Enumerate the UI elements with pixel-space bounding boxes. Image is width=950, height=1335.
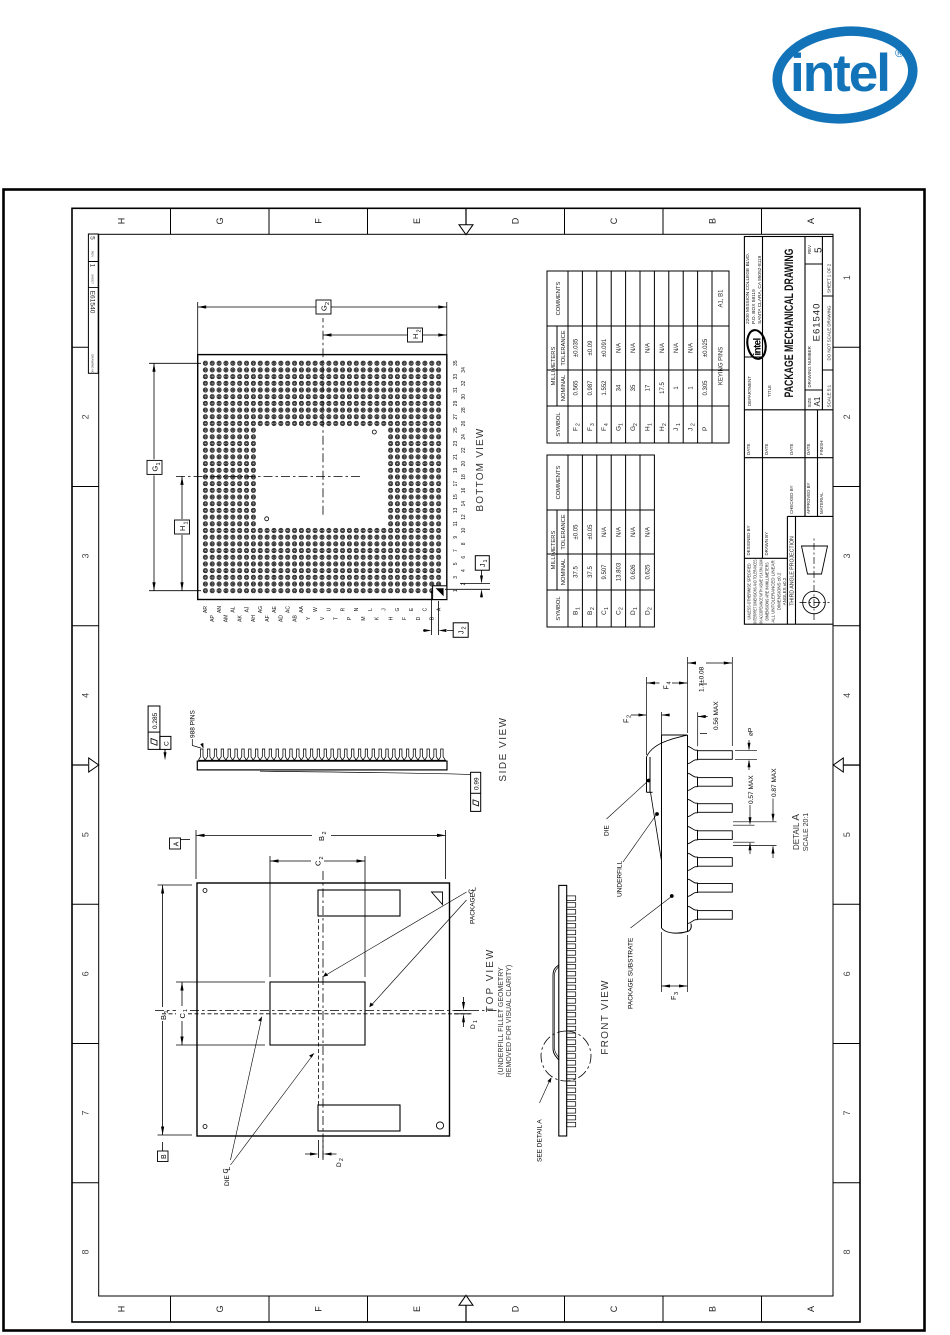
svg-text:MILLIMETERS: MILLIMETERS	[551, 531, 557, 570]
svg-text:5: 5	[89, 236, 96, 240]
svg-text:AC: AC	[286, 606, 292, 613]
svg-text:4: 4	[461, 569, 467, 572]
svg-text:D: D	[644, 610, 651, 615]
svg-text:COMMENTS: COMMENTS	[556, 281, 562, 315]
svg-text:H: H	[116, 1306, 126, 1313]
svg-text:2: 2	[627, 715, 633, 718]
svg-text:Y: Y	[306, 616, 312, 620]
svg-text:H: H	[659, 426, 666, 431]
svg-text:30: 30	[461, 394, 467, 400]
svg-text:G: G	[151, 466, 160, 472]
svg-text:A: A	[436, 607, 442, 611]
svg-text:E: E	[412, 1306, 422, 1312]
svg-text:PACKAGE MECHANICAL DRAWING: PACKAGE MECHANICAL DRAWING	[782, 249, 796, 398]
svg-text:2: 2	[590, 607, 596, 610]
svg-text:19: 19	[453, 467, 459, 473]
svg-text:A1, B1: A1, B1	[719, 289, 725, 308]
svg-text:U: U	[327, 607, 333, 611]
svg-text:0.57 MAX: 0.57 MAX	[748, 775, 755, 804]
svg-text:9: 9	[453, 536, 459, 539]
svg-text:C: C	[601, 610, 608, 615]
svg-text:D: D	[470, 1024, 477, 1029]
svg-text:T: T	[334, 617, 340, 620]
svg-text:4: 4	[81, 693, 91, 698]
svg-text:TITLE: TITLE	[767, 385, 772, 397]
svg-text:8: 8	[461, 542, 467, 545]
svg-text:DATE: DATE	[806, 444, 811, 455]
svg-text:COMMENTS: COMMENTS	[556, 465, 562, 499]
svg-text:DRAWN BY: DRAWN BY	[764, 532, 769, 556]
svg-text:P.O. BOX 58119: P.O. BOX 58119	[751, 289, 757, 324]
svg-text:B: B	[572, 611, 579, 615]
svg-text:SHEET 1 OF 2: SHEET 1 OF 2	[827, 263, 832, 293]
svg-text:TOLERANCE: TOLERANCE	[561, 514, 567, 549]
svg-text:7: 7	[81, 1110, 91, 1115]
svg-text:N/A: N/A	[660, 343, 666, 353]
svg-text:AL: AL	[231, 606, 237, 612]
svg-text:P: P	[702, 427, 709, 431]
svg-text:N/A: N/A	[674, 343, 680, 353]
svg-text:SCALE 20:1: SCALE 20:1	[803, 813, 810, 852]
svg-text:E: E	[409, 607, 415, 611]
svg-text:1: 1	[633, 607, 639, 610]
svg-text:33: 33	[453, 374, 459, 380]
svg-text:CHECKED BY: CHECKED BY	[789, 485, 794, 514]
svg-text:ALL UNTOLERANCED LINEAR: ALL UNTOLERANCED LINEAR	[771, 560, 776, 622]
svg-text:A: A	[806, 218, 816, 224]
svg-text:1: 1	[184, 521, 190, 524]
svg-text:PACKAGE: PACKAGE	[470, 892, 477, 924]
svg-text:24: 24	[461, 434, 467, 440]
svg-text:±0.091: ±0.091	[602, 338, 608, 357]
svg-text:0.987: 0.987	[588, 380, 594, 396]
svg-text:7: 7	[842, 1110, 852, 1115]
svg-text:F: F	[664, 685, 671, 689]
svg-text:DEPARTMENT: DEPARTMENT	[747, 376, 752, 406]
svg-text:F: F	[587, 427, 594, 431]
svg-text:DATE: DATE	[764, 444, 769, 455]
svg-text:K: K	[375, 616, 381, 620]
svg-text:2: 2	[462, 626, 468, 629]
svg-text:2: 2	[339, 1158, 345, 1161]
svg-text:W: W	[313, 607, 319, 612]
svg-text:0.305: 0.305	[703, 380, 709, 396]
svg-text:±0.035: ±0.035	[573, 338, 579, 357]
svg-text:21: 21	[453, 454, 459, 460]
svg-text:B: B	[587, 611, 594, 615]
svg-text:G: G	[320, 305, 329, 311]
svg-text:FRONT VIEW: FRONT VIEW	[600, 979, 611, 1055]
svg-text:AD: AD	[279, 615, 285, 622]
svg-text:E: E	[412, 218, 422, 224]
svg-text:G: G	[630, 426, 637, 431]
svg-text:B: B	[430, 616, 436, 620]
svg-text:37.5: 37.5	[588, 566, 594, 578]
svg-text:AH: AH	[251, 615, 257, 622]
svg-text:F: F	[313, 218, 323, 224]
svg-text:H: H	[178, 526, 187, 531]
svg-text:±0.05: ±0.05	[573, 524, 579, 540]
svg-text:17: 17	[453, 481, 459, 487]
svg-text:N/A: N/A	[602, 527, 608, 537]
svg-text:17.5: 17.5	[660, 382, 666, 394]
svg-text:H: H	[411, 334, 420, 339]
svg-text:1: 1	[473, 1020, 479, 1023]
svg-text:AJ: AJ	[244, 606, 250, 612]
svg-text:AR: AR	[203, 606, 209, 613]
svg-text:1: 1	[619, 423, 625, 426]
svg-text:G: G	[215, 217, 225, 224]
svg-text:AN: AN	[217, 606, 223, 613]
svg-text:BOTTOM VIEW: BOTTOM VIEW	[475, 427, 486, 511]
svg-text:31: 31	[453, 387, 459, 393]
svg-text:J: J	[382, 608, 388, 611]
svg-text:SANTA CLARA, CA 95052-8119: SANTA CLARA, CA 95052-8119	[757, 255, 763, 324]
svg-text:F: F	[601, 427, 608, 431]
svg-text:SEE DETAIL A: SEE DETAIL A	[537, 1119, 544, 1162]
svg-text:2: 2	[325, 302, 331, 305]
svg-text:2: 2	[647, 607, 653, 610]
svg-text:DO NOT SCALE DRAWING: DO NOT SCALE DRAWING	[827, 305, 832, 360]
svg-text:6: 6	[81, 971, 91, 976]
svg-text:N/A: N/A	[645, 343, 651, 353]
svg-text:THIRD ANGLE PROJECTION: THIRD ANGLE PROJECTION	[790, 536, 796, 606]
svg-text:DIE: DIE	[224, 1175, 231, 1187]
svg-text:MILLIMETERS: MILLIMETERS	[551, 347, 557, 386]
svg-text:SYMBOL: SYMBOL	[556, 596, 562, 621]
svg-text:±0.025: ±0.025	[703, 338, 709, 357]
svg-text:B: B	[707, 1306, 717, 1312]
svg-text:A: A	[806, 1306, 816, 1312]
svg-text:F: F	[402, 617, 408, 620]
svg-text:intel: intel	[753, 337, 764, 355]
svg-text:D: D	[630, 610, 637, 615]
svg-text:DRAWING NO: DRAWING NO	[91, 354, 95, 374]
svg-text:AF: AF	[265, 615, 271, 621]
svg-text:N/A: N/A	[689, 343, 695, 353]
svg-text:NOMINAL: NOMINAL	[561, 558, 567, 585]
svg-text:32: 32	[461, 380, 467, 386]
svg-text:INTERPRET DIMENSIONS AND TOLER: INTERPRET DIMENSIONS AND TOLERANCES	[753, 559, 758, 623]
svg-text:1: 1	[604, 607, 610, 610]
svg-text:1: 1	[689, 386, 695, 390]
svg-text:12: 12	[461, 514, 467, 520]
svg-text:0.285: 0.285	[152, 712, 159, 729]
svg-text:(UNDERFILL FILLET GEOMETRY: (UNDERFILL FILLET GEOMETRY	[498, 967, 505, 1075]
svg-text:N: N	[354, 607, 360, 611]
svg-text:2: 2	[417, 329, 423, 332]
svg-text:AB: AB	[292, 615, 298, 622]
svg-text:35: 35	[631, 384, 637, 391]
svg-text:C: C	[178, 1013, 187, 1019]
svg-text:2: 2	[633, 423, 639, 426]
svg-text:L: L	[469, 887, 478, 891]
svg-text:A1: A1	[813, 396, 822, 406]
svg-text:SIZE: SIZE	[807, 398, 812, 408]
svg-text:C: C	[164, 741, 171, 746]
svg-text:0.625: 0.625	[645, 564, 651, 580]
svg-text:±0.09: ±0.09	[588, 340, 594, 356]
svg-text:5: 5	[453, 562, 459, 565]
svg-text:G: G	[395, 607, 401, 611]
svg-text:MATERIAL: MATERIAL	[819, 492, 824, 514]
svg-text:V: V	[320, 616, 326, 620]
svg-text:N/A: N/A	[617, 527, 623, 537]
svg-text:2: 2	[319, 856, 325, 859]
svg-text:H: H	[644, 426, 651, 431]
svg-text:IN ACCORDANCE WITH ASME Y14.5M: IN ACCORDANCE WITH ASME Y14.5M-1994	[759, 559, 764, 623]
svg-text:23: 23	[453, 441, 459, 447]
svg-text:0.565: 0.565	[573, 380, 579, 396]
svg-text:®: ®	[895, 46, 904, 60]
svg-text:2: 2	[81, 414, 91, 419]
svg-text:5: 5	[81, 832, 91, 837]
svg-text:ANGLES ±0.2: ANGLES ±0.2	[782, 577, 787, 605]
svg-text:1: 1	[89, 264, 96, 268]
svg-text:17: 17	[645, 384, 651, 391]
svg-text:SHEET: SHEET	[91, 274, 95, 284]
svg-text:27: 27	[453, 414, 459, 420]
svg-text:DIE: DIE	[604, 825, 611, 837]
svg-text:N/A: N/A	[617, 343, 623, 353]
svg-text:AG: AG	[258, 606, 264, 613]
svg-text:F: F	[572, 427, 579, 431]
svg-text:0.99: 0.99	[474, 777, 481, 790]
svg-text:J: J	[688, 428, 695, 431]
svg-text:B: B	[159, 1015, 168, 1020]
svg-text:H: H	[388, 616, 394, 620]
svg-text:P: P	[347, 616, 353, 620]
svg-text:2200 MISSION COLLEGE BLVD.: 2200 MISSION COLLEGE BLVD.	[745, 253, 751, 324]
svg-text:29: 29	[453, 400, 459, 406]
svg-text:F: F	[624, 719, 631, 723]
svg-text:7: 7	[453, 549, 459, 552]
svg-text:37.5: 37.5	[573, 566, 579, 578]
svg-text:NOMINAL: NOMINAL	[561, 374, 567, 401]
svg-text:DETAIL A: DETAIL A	[791, 814, 802, 850]
svg-text:14: 14	[461, 501, 467, 507]
svg-text:C: C	[314, 860, 323, 866]
svg-text:3: 3	[842, 553, 852, 558]
svg-text:4: 4	[604, 423, 610, 426]
svg-text:F: F	[313, 1306, 323, 1312]
svg-text:22: 22	[461, 447, 467, 453]
svg-text:G: G	[215, 1305, 225, 1312]
svg-text:28: 28	[461, 407, 467, 413]
svg-text:AK: AK	[238, 615, 244, 622]
svg-text:UNLESS OTHERWISE SPECIFIED: UNLESS OTHERWISE SPECIFIED	[747, 564, 752, 620]
svg-text:PACKAGE SUBSTRATE: PACKAGE SUBSTRATE	[628, 937, 635, 1009]
svg-text:2: 2	[322, 831, 328, 834]
svg-text:1: 1	[674, 386, 680, 390]
svg-text:11: 11	[453, 521, 459, 526]
svg-text:D: D	[510, 217, 520, 224]
svg-text:FINISH: FINISH	[819, 441, 824, 455]
svg-text:N/A: N/A	[631, 527, 637, 537]
svg-text:TOLERANCE: TOLERANCE	[561, 330, 567, 365]
svg-text:DESIGNED BY: DESIGNED BY	[746, 525, 751, 555]
svg-text:8: 8	[81, 1249, 91, 1254]
svg-text:6: 6	[842, 971, 852, 976]
svg-text:J: J	[459, 631, 466, 635]
svg-text:E61540: E61540	[812, 303, 823, 342]
svg-text:G: G	[616, 426, 623, 431]
svg-text:0.56 MAX: 0.56 MAX	[713, 701, 720, 730]
svg-text:DRAWING NUMBER: DRAWING NUMBER	[807, 346, 812, 387]
svg-text:6: 6	[461, 556, 467, 559]
svg-text:AM: AM	[224, 615, 230, 623]
svg-text:D: D	[510, 1305, 520, 1312]
svg-text:2: 2	[575, 423, 581, 426]
svg-text:E61540: E61540	[88, 291, 95, 314]
svg-text:1: 1	[676, 423, 682, 426]
svg-text:N/A: N/A	[645, 527, 651, 537]
svg-text:REV: REV	[807, 245, 812, 254]
svg-text:DIMENSIONS ±0.2: DIMENSIONS ±0.2	[777, 572, 782, 610]
svg-text:TOP VIEW: TOP VIEW	[485, 948, 496, 1013]
svg-text:±0.05: ±0.05	[588, 524, 594, 540]
svg-text:1: 1	[483, 559, 489, 562]
svg-text:DATE: DATE	[746, 444, 751, 455]
svg-text:15: 15	[453, 494, 459, 500]
svg-text:9.507: 9.507	[602, 564, 608, 580]
svg-text:35: 35	[453, 360, 459, 366]
svg-text:UNDERFILL: UNDERFILL	[617, 860, 624, 897]
svg-text:26: 26	[461, 421, 467, 427]
svg-text:5: 5	[842, 832, 852, 837]
svg-text:0.87 MAX: 0.87 MAX	[771, 768, 778, 797]
svg-text:REMOVED FOR VISUAL CLARITY): REMOVED FOR VISUAL CLARITY)	[506, 965, 513, 1078]
svg-text:⌀P: ⌀P	[748, 728, 755, 736]
svg-text:B: B	[317, 836, 326, 841]
svg-text:1: 1	[647, 423, 653, 426]
svg-text:J: J	[480, 564, 487, 568]
svg-text:2: 2	[662, 423, 668, 426]
svg-text:D: D	[336, 1162, 343, 1167]
svg-text:3: 3	[453, 576, 459, 579]
svg-text:L: L	[223, 1167, 232, 1171]
svg-text:REV: REV	[91, 251, 95, 257]
svg-text:SIDE VIEW: SIDE VIEW	[498, 716, 509, 781]
svg-text:C: C	[616, 610, 623, 615]
svg-text:34: 34	[461, 367, 467, 373]
svg-text:4: 4	[842, 693, 852, 698]
svg-text:3: 3	[81, 553, 91, 558]
svg-text:APPROVED BY: APPROVED BY	[806, 482, 811, 514]
svg-text:18: 18	[461, 474, 467, 480]
svg-text:C: C	[609, 1305, 619, 1312]
svg-text:F: F	[671, 996, 678, 1000]
svg-text:34: 34	[617, 384, 623, 391]
svg-text:20: 20	[461, 461, 467, 467]
svg-text:1: 1	[183, 1009, 189, 1012]
svg-text:AE: AE	[272, 606, 278, 613]
svg-text:5: 5	[814, 247, 825, 253]
svg-text:4: 4	[667, 681, 673, 684]
svg-text:988 PINS: 988 PINS	[190, 710, 197, 738]
svg-text:1: 1	[164, 1010, 170, 1013]
svg-text:3: 3	[674, 992, 680, 995]
svg-text:1: 1	[575, 607, 581, 610]
svg-text:B: B	[707, 218, 717, 224]
svg-text:10: 10	[461, 528, 467, 534]
svg-text:intel: intel	[790, 44, 889, 103]
svg-text:0.626: 0.626	[631, 564, 637, 580]
svg-text:D: D	[416, 616, 422, 620]
svg-text:SYMBOL: SYMBOL	[556, 412, 562, 437]
svg-text:AP: AP	[210, 615, 216, 622]
svg-text:2: 2	[842, 414, 852, 419]
svg-text:DIMENSIONS ARE IN MILLIMETERS: DIMENSIONS ARE IN MILLIMETERS	[765, 562, 770, 620]
svg-text:KEYING PINS: KEYING PINS	[719, 347, 725, 385]
svg-text:1: 1	[156, 462, 162, 465]
svg-text:8: 8	[842, 1249, 852, 1254]
svg-text:1: 1	[842, 275, 852, 280]
svg-text:AA: AA	[299, 606, 305, 613]
svg-text:13.803: 13.803	[617, 562, 623, 581]
svg-text:R: R	[340, 607, 346, 611]
svg-text:2: 2	[619, 607, 625, 610]
svg-text:13: 13	[453, 507, 459, 513]
svg-text:3: 3	[590, 423, 596, 426]
svg-text:2: 2	[691, 423, 697, 426]
svg-text:M: M	[361, 616, 367, 620]
svg-text:DATE: DATE	[789, 444, 794, 455]
svg-text:16: 16	[461, 487, 467, 493]
svg-text:1.7±0.08: 1.7±0.08	[699, 666, 706, 692]
svg-text:N/A: N/A	[631, 343, 637, 353]
svg-text:C: C	[423, 607, 429, 611]
svg-text:H: H	[116, 218, 126, 225]
svg-text:25: 25	[453, 427, 459, 433]
svg-text:A: A	[173, 841, 180, 846]
svg-text:B: B	[161, 1154, 168, 1159]
svg-text:J: J	[673, 428, 680, 431]
svg-text:C: C	[609, 217, 619, 224]
svg-text:SCALE 5:1: SCALE 5:1	[827, 384, 832, 407]
svg-text:1.552: 1.552	[602, 380, 608, 396]
svg-text:L: L	[368, 608, 374, 611]
